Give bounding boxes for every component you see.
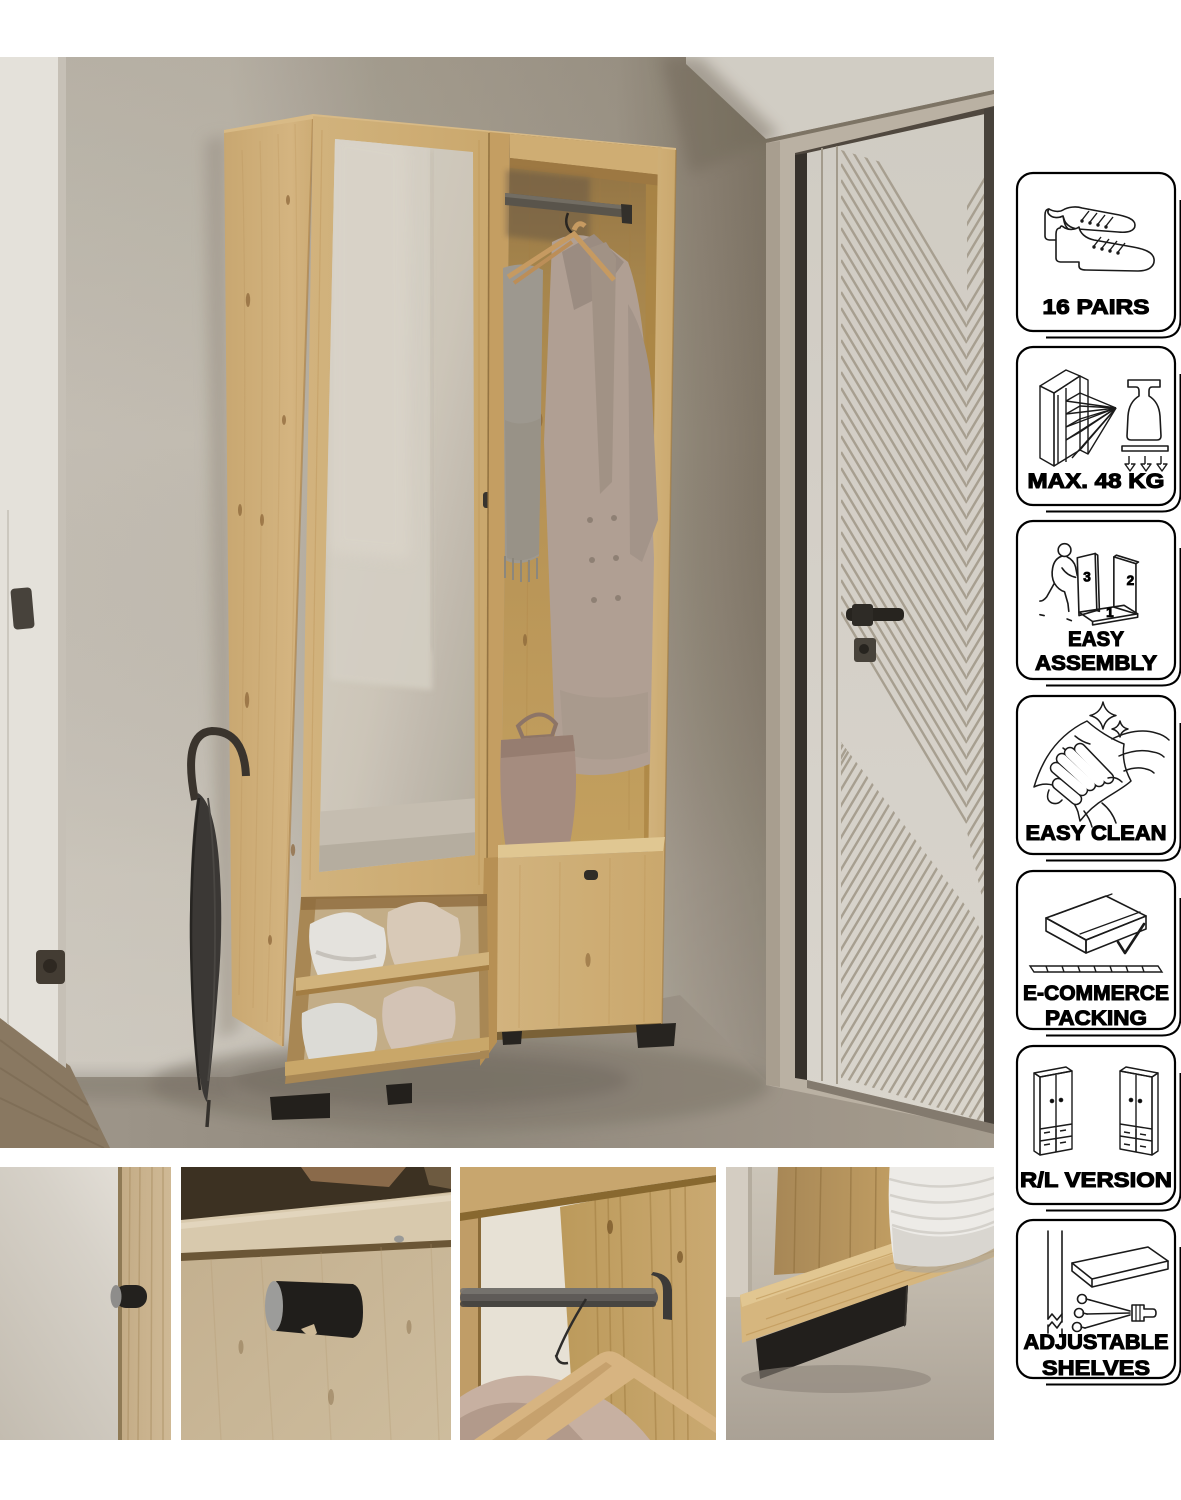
svg-text:1: 1: [1106, 605, 1114, 620]
svg-text:2: 2: [1127, 573, 1135, 588]
svg-text:MAX. 48 KG: MAX. 48 KG: [1028, 469, 1165, 493]
svg-text:R/L VERSION: R/L VERSION: [1020, 1168, 1172, 1192]
svg-text:PACKING: PACKING: [1045, 1006, 1147, 1030]
svg-text:ADJUSTABLE: ADJUSTABLE: [1024, 1330, 1169, 1354]
svg-text:16 PAIRS: 16 PAIRS: [1043, 295, 1150, 319]
svg-text:EASY: EASY: [1068, 627, 1124, 651]
svg-text:3: 3: [1083, 570, 1091, 585]
svg-text:E-COMMERCE: E-COMMERCE: [1023, 981, 1169, 1005]
svg-text:SHELVES: SHELVES: [1042, 1356, 1150, 1380]
svg-text:ASSEMBLY: ASSEMBLY: [1035, 651, 1157, 675]
svg-text:EASY CLEAN: EASY CLEAN: [1026, 821, 1167, 845]
